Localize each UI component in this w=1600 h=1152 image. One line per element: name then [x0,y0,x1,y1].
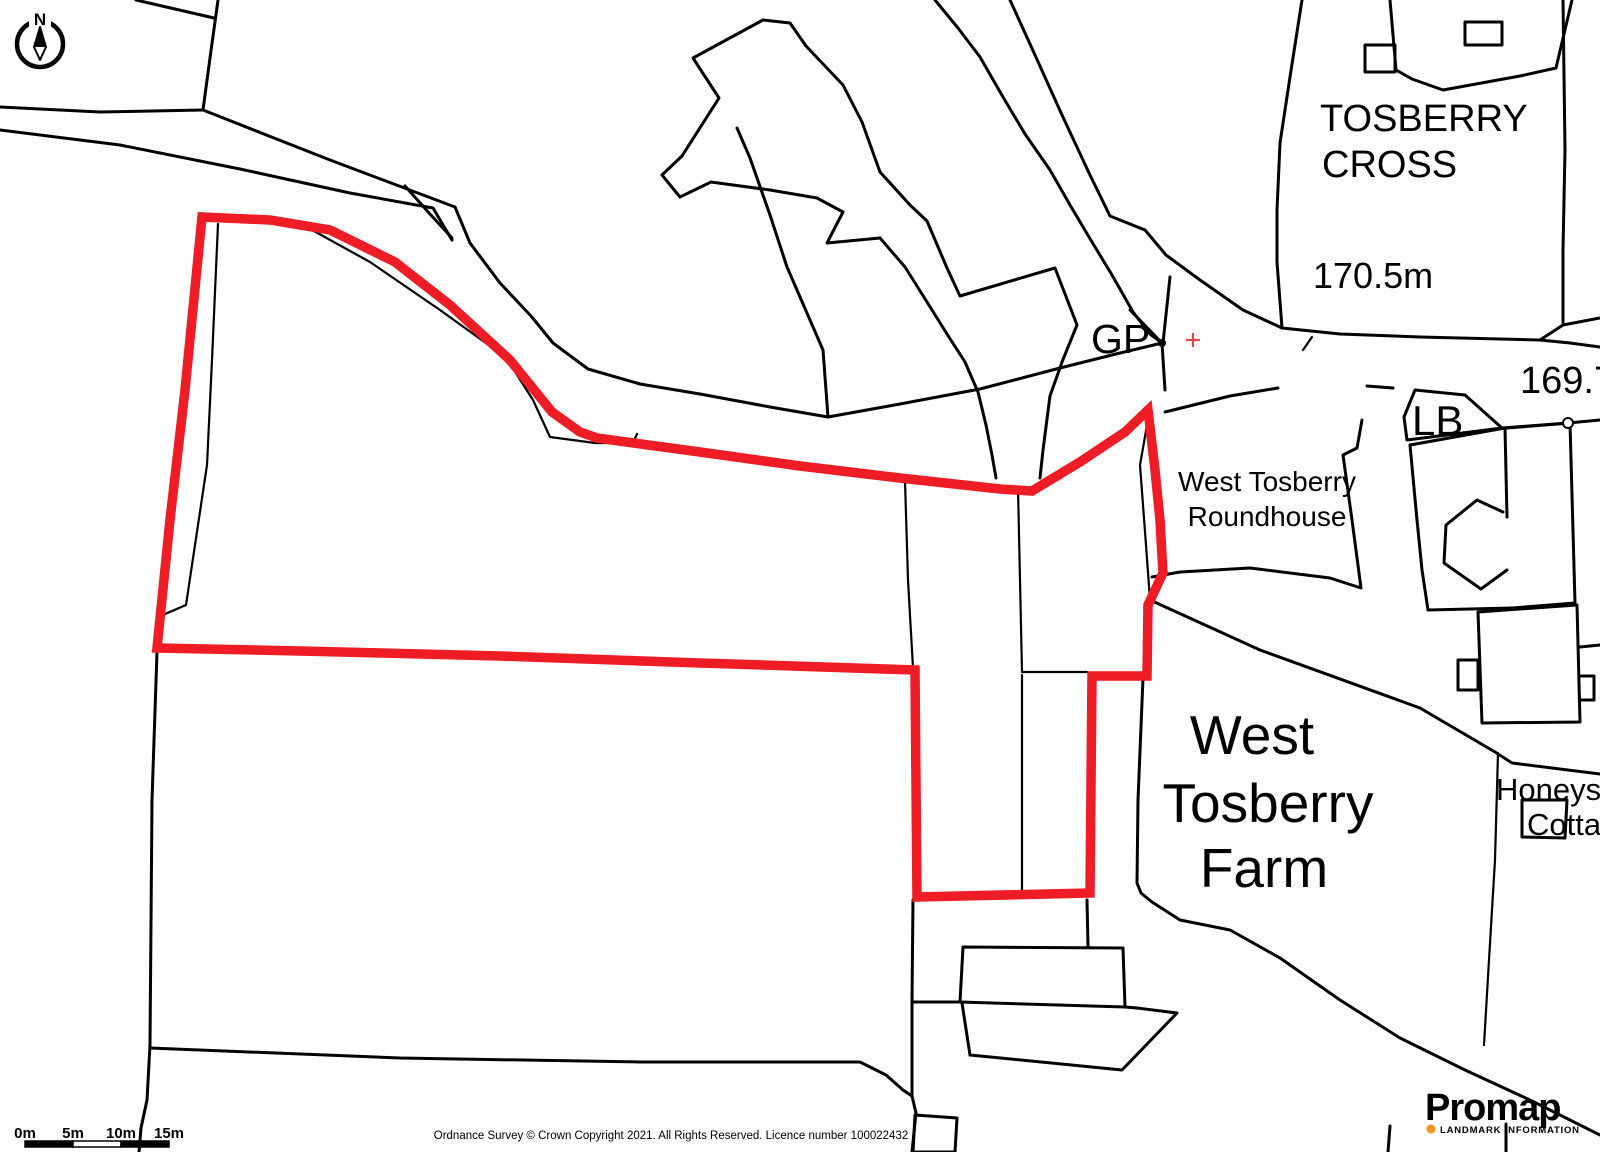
label-lb: LB [1412,397,1463,444]
north-label: N [34,10,46,29]
gp-post-dot [1158,339,1166,347]
label-roundhouse-line1: West Tosberry [1178,466,1356,497]
building [1580,645,1600,647]
promap-logo-dot-icon [1427,1125,1436,1134]
map-viewport: TOSBERRYCROSS170.5mGP169.7mLBWest Tosber… [0,0,1600,1152]
road-dash [1367,386,1393,388]
label-honeysuckle-line1: Honeysuckle [1496,772,1600,807]
copyright-text: Ordnance Survey © Crown Copyright 2021. … [434,1130,909,1142]
label-roundhouse-line2: Roundhouse [1188,501,1347,532]
label-gp: GP [1091,316,1150,362]
promap-logo-title: Promap [1425,1087,1560,1129]
label-farm-line3: Farm [1200,837,1328,899]
label-honeysuckle-line2: Cottage [1527,807,1600,842]
field-boundary [1388,1126,1390,1152]
scale-label: 10m [106,1125,136,1142]
scale-label: 15m [154,1125,184,1142]
promap-logo: PromapLANDMARK INFORMATION [1425,1087,1580,1136]
scale-label: 0m [14,1125,36,1142]
field-boundary [1087,900,1088,947]
post-circle-icon [1563,418,1573,428]
scale-label: 5m [62,1125,84,1142]
promap-logo-tagline: LANDMARK INFORMATION [1440,1125,1580,1136]
label-farm-line2: Tosberry [1163,772,1374,834]
label-tosberry-cross-line2: CROSS [1322,144,1457,186]
label-spot-height-170: 170.5m [1313,255,1433,296]
label-spot-height-169: 169.7m [1520,360,1600,402]
map: TOSBERRYCROSS170.5mGP169.7mLBWest Tosber… [0,0,1600,1152]
label-tosberry-cross-line1: TOSBERRY [1320,98,1528,140]
label-farm-line1: West [1190,704,1314,766]
building-division [1505,428,1507,517]
